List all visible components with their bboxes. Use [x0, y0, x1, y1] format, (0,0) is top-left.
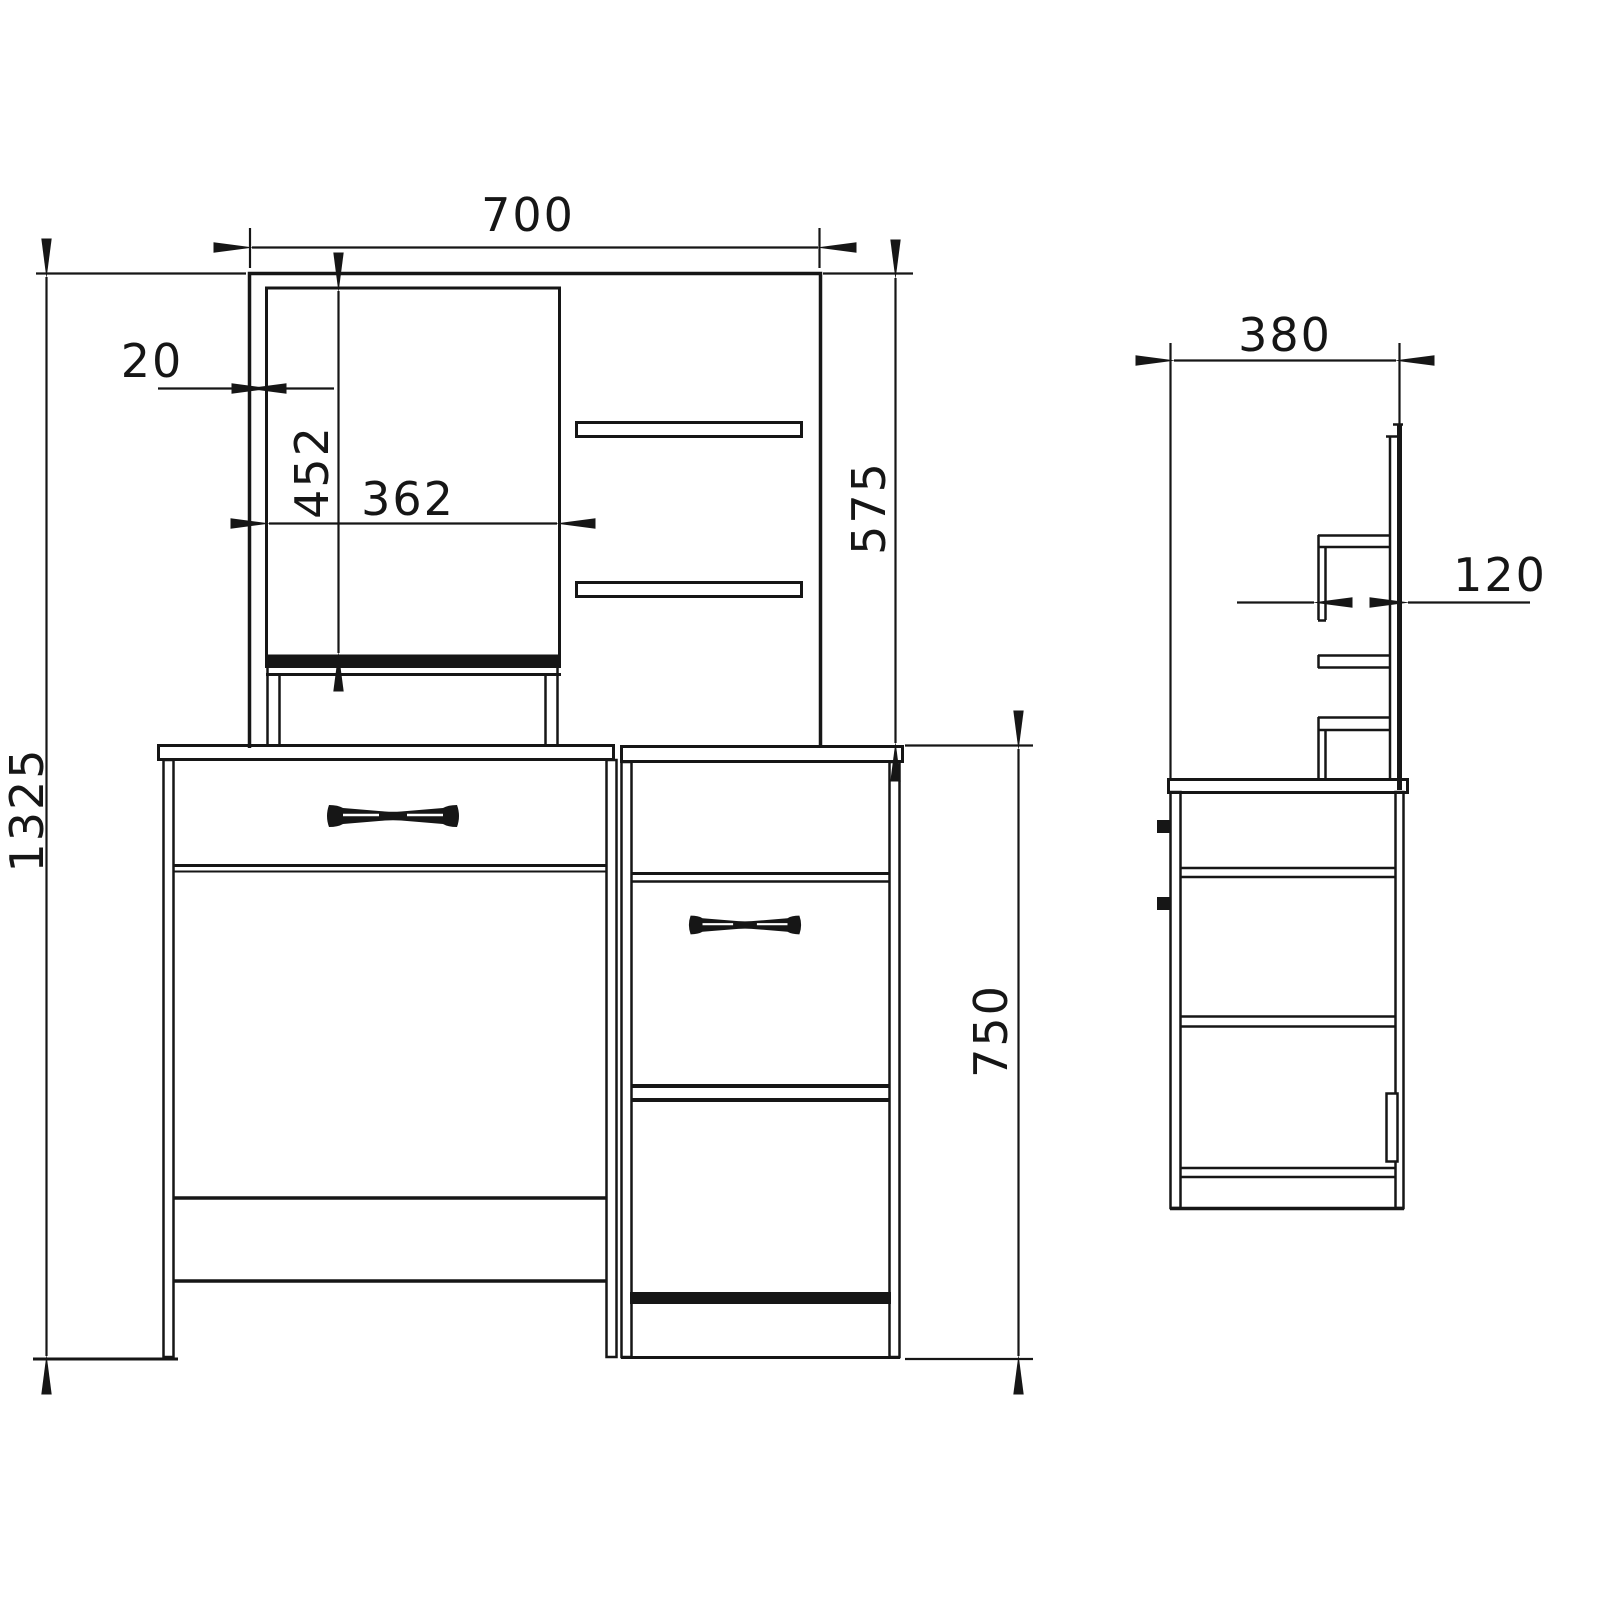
- dim-label-452: 452: [285, 425, 339, 519]
- lower-shelf: [577, 583, 802, 597]
- dim-label-120: 120: [1453, 548, 1547, 602]
- pedestal-side-front-wall: [1171, 792, 1181, 1208]
- drawer-handle-icon: [327, 805, 459, 827]
- table-top: [159, 746, 614, 760]
- rear-bracket: [1387, 1094, 1398, 1162]
- dim-label-20: 20: [121, 334, 184, 388]
- drawing-sheet: 700 20 452 362 575 1325: [0, 0, 1600, 1600]
- dim-label-1325: 1325: [0, 747, 54, 872]
- side-shelf-middle: [1318, 655, 1389, 668]
- table-top-side: [1169, 780, 1408, 793]
- side-handle-top-icon: [1157, 820, 1170, 833]
- dim-upper-height: 575: [823, 274, 913, 744]
- side-shelf-lower: [1318, 717, 1389, 779]
- dim-label-362: 362: [361, 472, 455, 526]
- dim-label-575: 575: [842, 461, 896, 555]
- pedestal-right-wall: [890, 762, 900, 1357]
- dim-label-700: 700: [481, 188, 575, 242]
- pedestal-top: [622, 747, 903, 762]
- dim-shelf-depth: 120: [1237, 548, 1547, 603]
- dim-mirror-height: 452: [285, 291, 339, 653]
- cabinet-right-panel: [607, 760, 617, 1357]
- pedestal-left-wall: [622, 762, 632, 1357]
- dim-depth: 380: [1174, 308, 1396, 362]
- side-view: 380 12: [1157, 308, 1547, 1209]
- dim-overall-height: 1325: [0, 274, 246, 1357]
- dim-overall-width: 700: [250, 188, 820, 268]
- dim-mirror-offset: 20: [121, 334, 334, 389]
- dim-table-height: 750: [905, 746, 1033, 1360]
- technical-drawing-canvas: 700 20 452 362 575 1325: [0, 0, 1600, 1600]
- dim-label-380: 380: [1238, 308, 1332, 362]
- pedestal-handle-icon: [689, 916, 801, 935]
- front-view: 700 20 452 362 575 1325: [0, 188, 1033, 1359]
- left-side-panel: [164, 760, 174, 1357]
- side-handle-middle-icon: [1157, 897, 1170, 910]
- upper-shelf: [577, 423, 802, 437]
- pedestal-base-recess: [630, 1292, 891, 1304]
- mirror-bottom-frame: [265, 656, 561, 668]
- dim-label-750: 750: [964, 984, 1018, 1078]
- side-shelf-upper: [1318, 535, 1389, 621]
